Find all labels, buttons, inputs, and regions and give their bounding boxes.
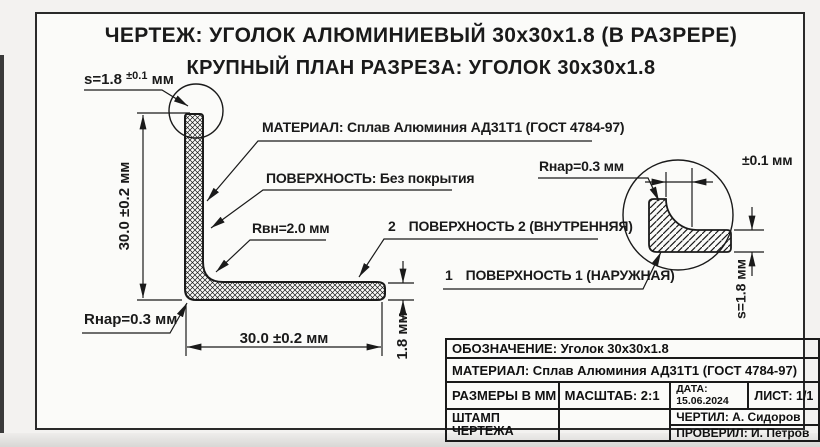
designation-cell: ОБОЗНАЧЕНИЕ: Уголок 30x30x1.8 bbox=[446, 339, 819, 358]
width-dimension bbox=[186, 302, 382, 356]
surface2-number: 2 bbox=[388, 219, 396, 234]
detail-view-circle bbox=[623, 160, 733, 270]
detail-tolerance-label: ±0.1 мм bbox=[742, 153, 792, 168]
drawing-sheet: ЧЕРТЕЖ: УГОЛОК АЛЮМИНИЕВЫЙ 30x30x1.8 (В … bbox=[0, 0, 820, 447]
empty-cell bbox=[559, 409, 671, 441]
surface1-number: 1 bbox=[445, 268, 453, 283]
surface1-callout: 1ПОВЕРХНОСТЬ 1 (НАРУЖНАЯ) bbox=[445, 268, 675, 283]
width-dimension-text: 30.0 ±0.2 мм bbox=[240, 331, 329, 347]
thickness-value: s=1.8 bbox=[84, 71, 122, 88]
material-cell: МАТЕРИАЛ: Сплав Алюминия АД31Т1 (ГОСТ 47… bbox=[446, 358, 819, 382]
stamp-line2: ЧЕРТЕЖА bbox=[452, 425, 558, 438]
detail-thickness-label: s=1.8 мм bbox=[734, 259, 749, 319]
date-cell: ДАТА:15.06.2024 bbox=[670, 382, 748, 409]
surface-finish-callout: ПОВЕРХНОСТЬ: Без покрытия bbox=[266, 171, 474, 186]
outer-radius-left-label: Rнар=0.3 мм bbox=[84, 312, 177, 328]
scale-cell: МАСШТАБ: 2:1 bbox=[559, 382, 671, 409]
drawn-by-cell: ЧЕРТИЛ: А. Сидоров bbox=[670, 409, 819, 425]
height-dimension-text: 30.0 ±0.2 мм bbox=[117, 162, 133, 251]
drawing-title: ЧЕРТЕЖ: УГОЛОК АЛЮМИНИЕВЫЙ 30x30x1.8 (В … bbox=[35, 25, 807, 47]
sheet-cell: ЛИСТ: 1/1 bbox=[748, 382, 819, 409]
height-dimension bbox=[137, 113, 190, 300]
surface1-text: ПОВЕРХНОСТЬ 1 (НАРУЖНАЯ) bbox=[466, 268, 675, 283]
dimensions-note-cell: РАЗМЕРЫ В ММ bbox=[446, 382, 559, 409]
leg-thickness-text: 1.8 мм bbox=[395, 312, 411, 359]
surface2-callout: 2ПОВЕРХНОСТЬ 2 (ВНУТРЕННЯЯ) bbox=[388, 219, 633, 234]
thickness-unit: мм bbox=[152, 71, 174, 88]
outer-radius-right-label: Rнар=0.3 мм bbox=[539, 159, 624, 174]
surface2-text: ПОВЕРХНОСТЬ 2 (ВНУТРЕННЯЯ) bbox=[409, 219, 633, 234]
checked-by-cell: ПРОВЕРИЛ: И. Петров bbox=[670, 425, 819, 441]
date-value: 15.06.2024 bbox=[676, 396, 747, 407]
material-callout: МАТЕРИАЛ: Сплав Алюминия АД31Т1 (ГОСТ 47… bbox=[262, 120, 624, 135]
date-label: ДАТА: bbox=[676, 384, 747, 395]
inner-radius-label: Rвн=2.0 мм bbox=[252, 221, 329, 236]
detail-corner-section bbox=[649, 199, 731, 252]
title-block: ОБОЗНАЧЕНИЕ: Уголок 30x30x1.8 МАТЕРИАЛ: … bbox=[445, 338, 820, 442]
thickness-tolerance: ±0.1 bbox=[126, 70, 147, 82]
stamp-cell: ШТАМПЧЕРТЕЖА bbox=[446, 409, 559, 441]
angle-profile-section bbox=[185, 114, 385, 300]
thickness-callout: s=1.8 ±0.1 мм bbox=[84, 71, 174, 88]
